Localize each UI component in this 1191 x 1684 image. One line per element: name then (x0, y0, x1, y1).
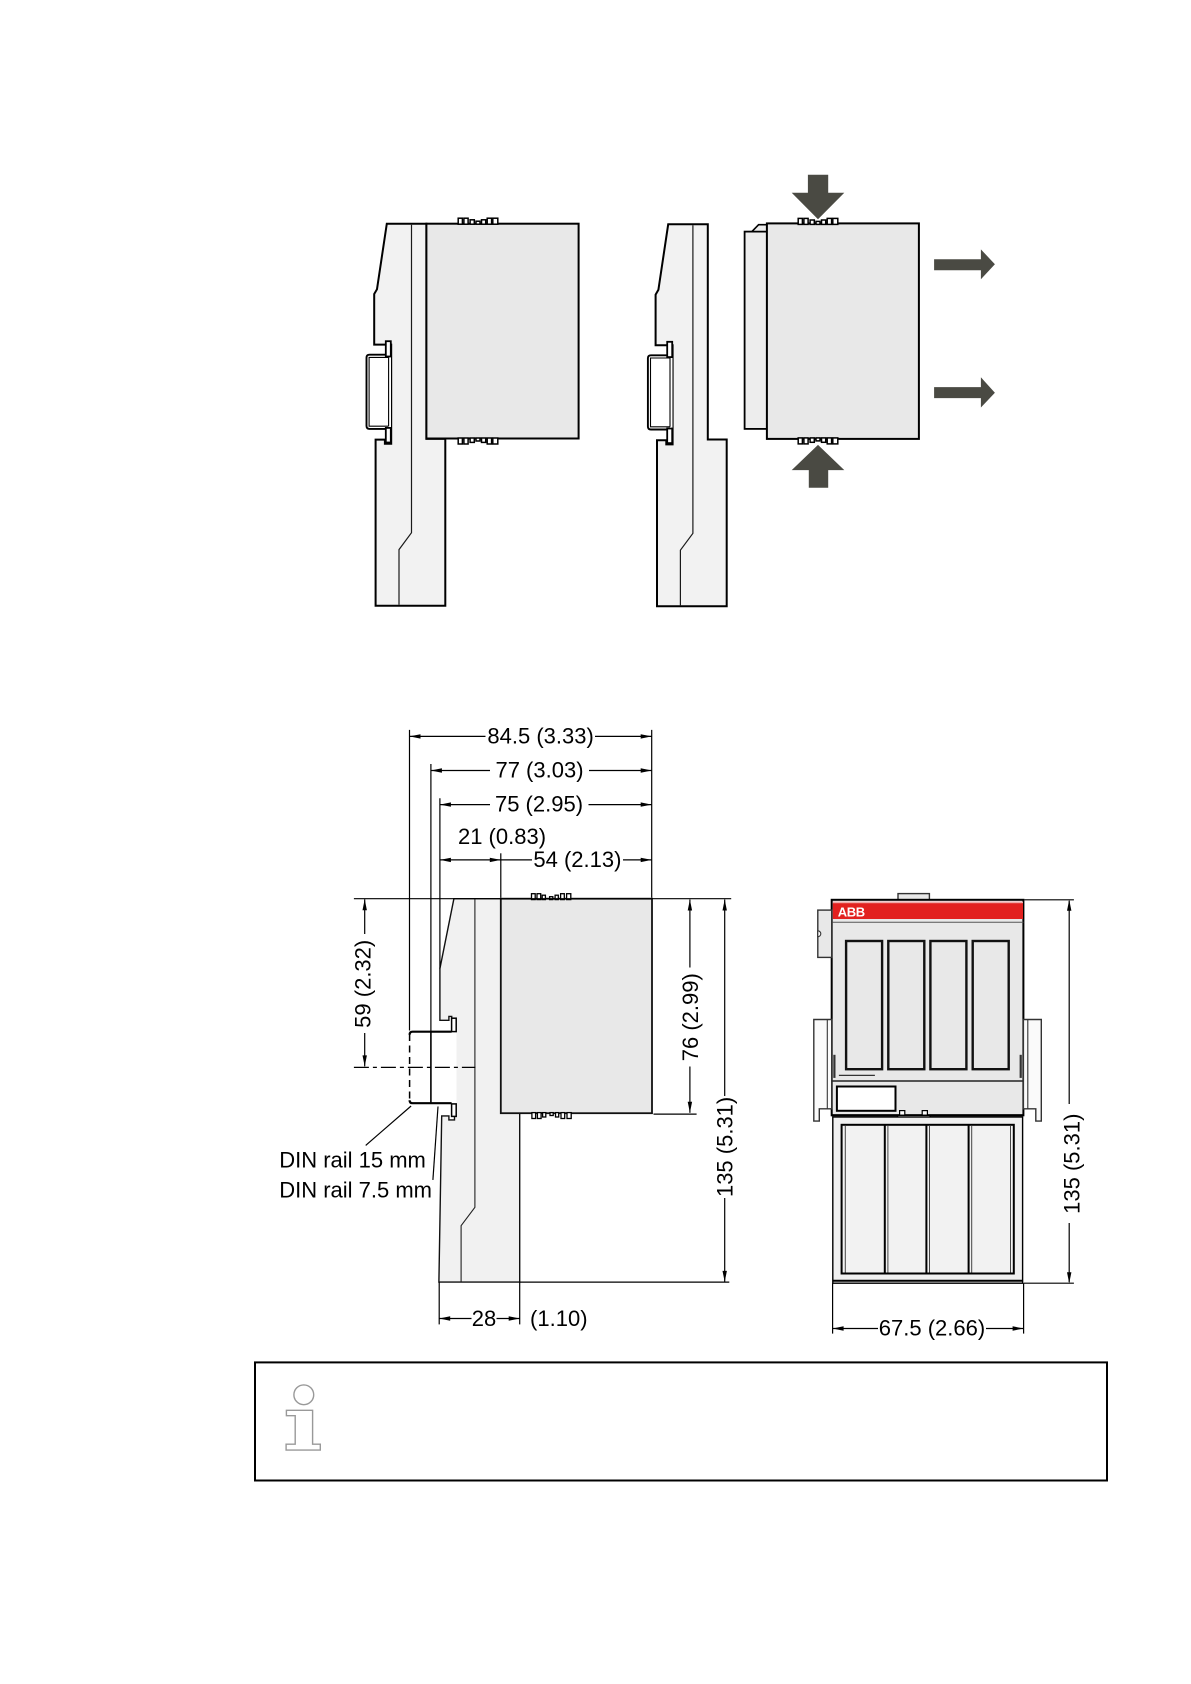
svg-text:135 (5.31): 135 (5.31) (1060, 1114, 1085, 1214)
svg-text:76 (2.99): 76 (2.99) (678, 973, 703, 1061)
svg-text:84.5 (3.33): 84.5 (3.33) (487, 724, 593, 749)
svg-text:54 (2.13): 54 (2.13) (533, 847, 621, 872)
svg-text:ABB: ABB (838, 905, 865, 920)
svg-text:77 (3.03): 77 (3.03) (495, 758, 583, 783)
svg-text:28: 28 (472, 1306, 496, 1331)
svg-text:(1.10): (1.10) (530, 1306, 587, 1331)
svg-text:DIN rail 7.5 mm: DIN rail 7.5 mm (279, 1178, 432, 1203)
svg-text:67.5 (2.66): 67.5 (2.66) (879, 1316, 985, 1341)
svg-text:21 (0.83): 21 (0.83) (458, 824, 546, 849)
svg-text:59 (2.32): 59 (2.32) (351, 940, 376, 1028)
svg-text:DIN rail 15 mm: DIN rail 15 mm (279, 1148, 426, 1173)
svg-text:135 (5.31): 135 (5.31) (713, 1097, 738, 1197)
svg-text:75 (2.95): 75 (2.95) (495, 792, 583, 817)
